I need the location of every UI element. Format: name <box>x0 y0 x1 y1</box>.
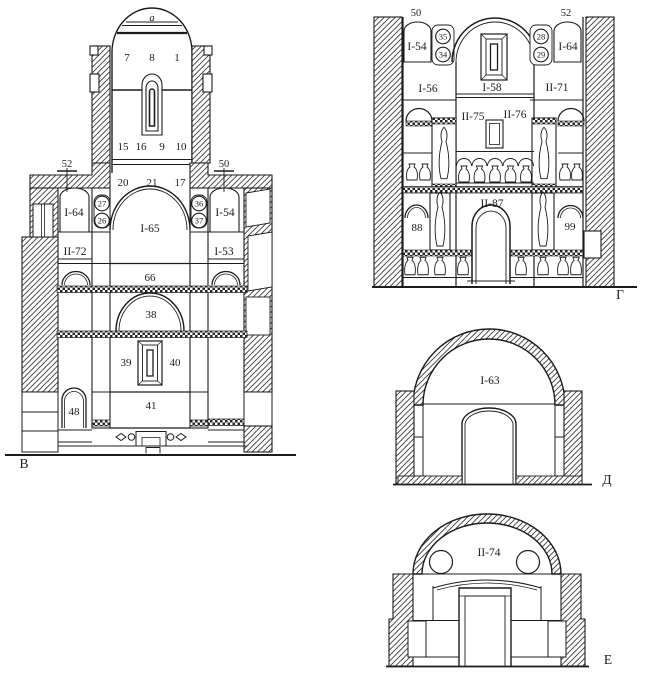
label-b-circle-37: 37 <box>195 216 204 226</box>
section-d <box>393 329 592 485</box>
label-b-circle-36: 36 <box>195 199 204 209</box>
label-g-hall: II-87 <box>481 198 504 210</box>
label-b-gallery-3: 17 <box>175 177 187 189</box>
label-g-circle-29: 29 <box>537 50 546 60</box>
label-b-drum-1: 15 <box>118 141 130 153</box>
label-b-room-e: I-53 <box>214 246 233 258</box>
drum-wall-left <box>92 46 110 163</box>
label-g-vault: I-58 <box>482 82 501 94</box>
label-b-niche-nw: I-64 <box>64 207 83 219</box>
wall-ledge <box>584 231 601 258</box>
section-e <box>386 514 589 667</box>
ornament-band-g <box>403 187 583 194</box>
label-g-circle-34: 34 <box>439 50 448 60</box>
label-g-niche-ne: I-64 <box>558 41 577 53</box>
label-b-nave: 41 <box>146 400 157 412</box>
label-b-niche-ne: I-54 <box>215 207 234 219</box>
label-b-mark-left: 52 <box>62 159 73 170</box>
figure-canvas: a 7 8 1 15 16 9 10 52 50 20 21 17 I-64 2… <box>0 0 647 680</box>
label-b-drum-3: 9 <box>159 141 165 153</box>
arch-d <box>462 408 516 484</box>
label-e-vault: II-74 <box>478 547 501 559</box>
drum-wall-right <box>192 46 210 163</box>
label-d-vault: I-63 <box>480 375 499 387</box>
label-b-niche-sw: 48 <box>69 406 81 418</box>
label-g-arch-w: 88 <box>412 222 424 234</box>
doorway-e <box>459 588 511 666</box>
section-d-labels: I-63 Д <box>480 375 611 487</box>
ornament-band-lower <box>57 331 247 338</box>
label-b-arch: 38 <box>146 309 158 321</box>
section-b-dome-drum <box>90 8 212 173</box>
label-b-dome-2: 8 <box>149 52 155 64</box>
label-b-mark-right: 50 <box>219 159 230 170</box>
column-circle-left <box>430 551 453 574</box>
label-section-e-letter: Е <box>604 652 612 667</box>
label-b-apex: a <box>149 13 154 24</box>
wall-window-left <box>33 204 53 237</box>
label-b-dome-3: 1 <box>174 52 180 64</box>
ornament-band-upper <box>57 286 247 293</box>
section-g <box>372 16 637 287</box>
label-g-mark-right: 52 <box>561 8 572 19</box>
label-g-niche-nw: I-54 <box>407 41 426 53</box>
column-circle-right <box>517 551 540 574</box>
label-b-gallery-1: 20 <box>118 177 130 189</box>
label-g-vault-e: II-76 <box>504 109 527 121</box>
label-b-pier-e: 40 <box>170 357 182 369</box>
label-section-b-letter: В <box>19 456 28 471</box>
label-b-room-w: II-72 <box>64 246 87 258</box>
label-b-dome-1: 7 <box>124 52 130 64</box>
label-section-d-letter: Д <box>602 472 611 487</box>
architectural-sections-drawing: a 7 8 1 15 16 9 10 52 50 20 21 17 I-64 2… <box>0 0 647 680</box>
label-b-gallery-2: 21 <box>147 177 158 189</box>
label-g-vault-w: II-75 <box>462 111 485 123</box>
section-e-labels: II-74 Е <box>478 547 613 667</box>
label-b-drum-4: 10 <box>176 141 188 153</box>
label-g-circle-35: 35 <box>439 32 448 42</box>
label-g-circle-28: 28 <box>537 32 546 42</box>
label-g-room-e: II-71 <box>546 82 569 94</box>
label-section-g-letter: Г <box>616 287 624 302</box>
label-b-circle-26: 26 <box>98 216 107 226</box>
label-g-room-w: I-56 <box>418 83 437 95</box>
label-b-pier-w: 39 <box>121 357 133 369</box>
label-b-vault: I-65 <box>140 223 159 235</box>
label-g-mark-left: 50 <box>411 8 422 19</box>
label-b-band: 66 <box>145 272 157 284</box>
label-g-arch-e: 99 <box>565 221 577 233</box>
dome-shell-d <box>413 329 565 405</box>
label-b-drum-2: 16 <box>136 141 148 153</box>
label-b-circle-27: 27 <box>98 199 107 209</box>
